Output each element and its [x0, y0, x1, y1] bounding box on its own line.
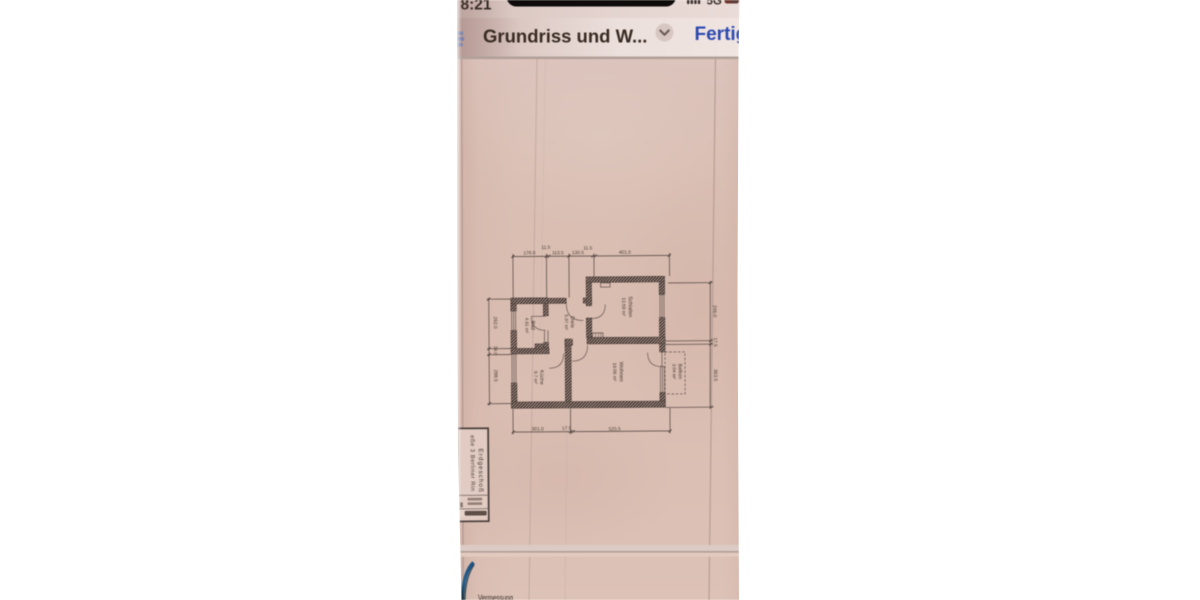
- svg-text:301.0: 301.0: [532, 426, 544, 432]
- svg-text:5G: 5G: [707, 0, 722, 8]
- svg-text:11.5: 11.5: [541, 245, 550, 251]
- svg-text:176.0: 176.0: [523, 250, 535, 256]
- svg-text:Vermessung: Vermessung: [478, 593, 513, 600]
- svg-text:11.5: 11.5: [583, 245, 592, 251]
- svg-text:4.61 m²: 4.61 m²: [524, 318, 529, 334]
- svg-text:130.5: 130.5: [572, 250, 584, 256]
- svg-text:288.5: 288.5: [492, 370, 498, 382]
- svg-text:34.0: 34.0: [492, 346, 498, 356]
- svg-text:Grundriss und W...: Grundriss und W...: [483, 26, 647, 47]
- svg-text:9.7 m²: 9.7 m²: [533, 371, 538, 385]
- svg-text:Schlafen: Schlafen: [627, 296, 633, 317]
- svg-text:5.97 m²: 5.97 m²: [564, 314, 569, 330]
- svg-text:17.5: 17.5: [562, 426, 572, 432]
- svg-text:262.0: 262.0: [492, 317, 498, 329]
- svg-text:eße 3 Berliner Rin: eße 3 Berliner Rin: [469, 435, 475, 492]
- svg-text:401.0: 401.0: [619, 250, 631, 256]
- svg-text:19.06 m²: 19.06 m²: [612, 363, 617, 382]
- svg-text:363.5: 363.5: [712, 369, 718, 381]
- svg-text:3.04 m²: 3.04 m²: [672, 364, 677, 380]
- svg-text:17.5: 17.5: [712, 337, 718, 347]
- svg-text:Wohnen: Wohnen: [618, 362, 624, 382]
- svg-text:113.5: 113.5: [552, 250, 564, 256]
- svg-text:Erdgeschoß: Erdgeschoß: [477, 449, 484, 494]
- svg-text:246.0: 246.0: [711, 305, 717, 317]
- svg-text:Fertig: Fertig: [695, 24, 748, 45]
- svg-text:13.59 m²: 13.59 m²: [621, 297, 626, 316]
- svg-text:525.5: 525.5: [609, 426, 621, 432]
